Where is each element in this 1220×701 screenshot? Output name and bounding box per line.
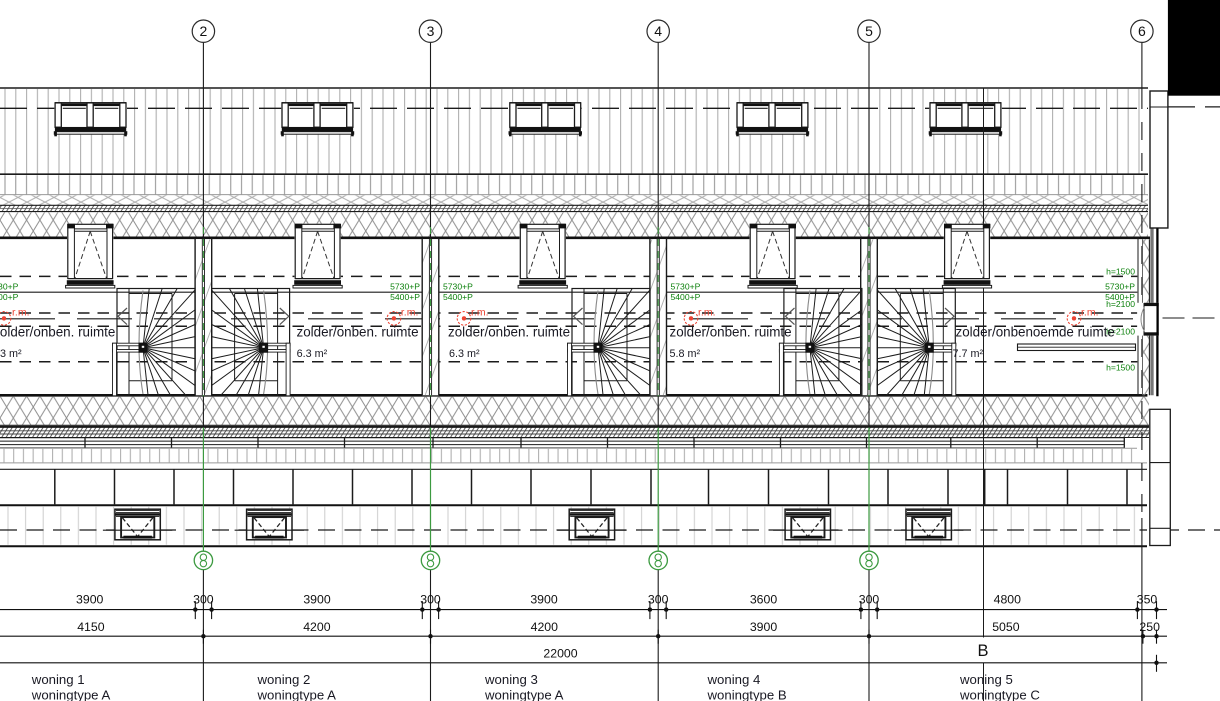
svg-text:woning 3: woning 3 — [484, 672, 538, 687]
svg-text:woningtype C: woningtype C — [959, 688, 1040, 701]
svg-text:woningtype A: woningtype A — [257, 688, 337, 701]
svg-text:r.m.: r.m. — [401, 307, 419, 319]
svg-text:3900: 3900 — [303, 593, 331, 607]
svg-text:4800: 4800 — [994, 593, 1022, 607]
svg-text:h=1500: h=1500 — [1106, 266, 1135, 276]
svg-text:6.3 m²: 6.3 m² — [0, 348, 22, 360]
svg-text:6.3 m²: 6.3 m² — [449, 348, 480, 360]
svg-text:4: 4 — [654, 23, 662, 39]
svg-text:5400+P: 5400+P — [671, 292, 701, 302]
svg-text:woning 5: woning 5 — [959, 672, 1013, 687]
svg-text:4150: 4150 — [77, 620, 105, 634]
svg-text:22000: 22000 — [543, 647, 577, 661]
svg-text:r.m.: r.m. — [698, 307, 716, 319]
svg-text:5730+P: 5730+P — [1105, 282, 1135, 292]
svg-text:3900: 3900 — [530, 593, 558, 607]
svg-text:B: B — [977, 642, 988, 660]
svg-text:300: 300 — [648, 593, 669, 607]
svg-text:woningtype B: woningtype B — [707, 688, 787, 701]
svg-text:woningtype A: woningtype A — [31, 688, 111, 701]
svg-text:woningtype A: woningtype A — [484, 688, 564, 701]
svg-text:5400+P: 5400+P — [390, 292, 420, 302]
svg-text:woning 4: woning 4 — [707, 672, 761, 687]
svg-text:5400+P: 5400+P — [0, 292, 19, 302]
svg-text:woning 1: woning 1 — [31, 672, 85, 687]
svg-text:3600: 3600 — [750, 593, 778, 607]
svg-text:250: 250 — [1139, 620, 1160, 634]
svg-text:350: 350 — [1137, 593, 1158, 607]
svg-text:r.m.: r.m. — [471, 307, 489, 319]
svg-text:zolder/onbenoemde ruimte: zolder/onbenoemde ruimte — [956, 325, 1115, 340]
svg-text:5.8 m²: 5.8 m² — [670, 348, 701, 360]
svg-text:5730+P: 5730+P — [443, 282, 473, 292]
svg-text:zolder/onben. ruimte: zolder/onben. ruimte — [448, 325, 570, 340]
svg-text:3: 3 — [427, 23, 435, 39]
svg-text:zolder/onben. ruimte: zolder/onben. ruimte — [670, 325, 792, 340]
svg-text:5730+P: 5730+P — [671, 282, 701, 292]
svg-text:6.3 m²: 6.3 m² — [297, 348, 328, 360]
svg-text:h=2100: h=2100 — [1106, 299, 1135, 309]
svg-text:6: 6 — [1138, 23, 1146, 39]
svg-text:h=1500: h=1500 — [1106, 363, 1135, 373]
svg-text:zolder/onben. ruimte: zolder/onben. ruimte — [297, 325, 419, 340]
svg-text:5730+P: 5730+P — [0, 282, 19, 292]
svg-text:7.7 m²: 7.7 m² — [953, 348, 984, 360]
svg-text:5050: 5050 — [992, 620, 1020, 634]
svg-text:5400+P: 5400+P — [443, 292, 473, 302]
svg-text:300: 300 — [193, 593, 214, 607]
svg-text:2: 2 — [200, 23, 208, 39]
svg-text:300: 300 — [859, 593, 880, 607]
svg-text:4200: 4200 — [303, 620, 331, 634]
svg-text:300: 300 — [420, 593, 441, 607]
svg-text:5: 5 — [865, 23, 873, 39]
svg-text:3900: 3900 — [750, 620, 778, 634]
svg-text:zolder/onben. ruimte: zolder/onben. ruimte — [0, 325, 115, 340]
svg-text:woning 2: woning 2 — [257, 672, 311, 687]
svg-text:5730+P: 5730+P — [390, 282, 420, 292]
svg-text:3900: 3900 — [76, 593, 104, 607]
svg-text:4200: 4200 — [531, 620, 559, 634]
svg-text:r.m.: r.m. — [12, 307, 30, 319]
svg-text:r.m.: r.m. — [1081, 307, 1099, 319]
